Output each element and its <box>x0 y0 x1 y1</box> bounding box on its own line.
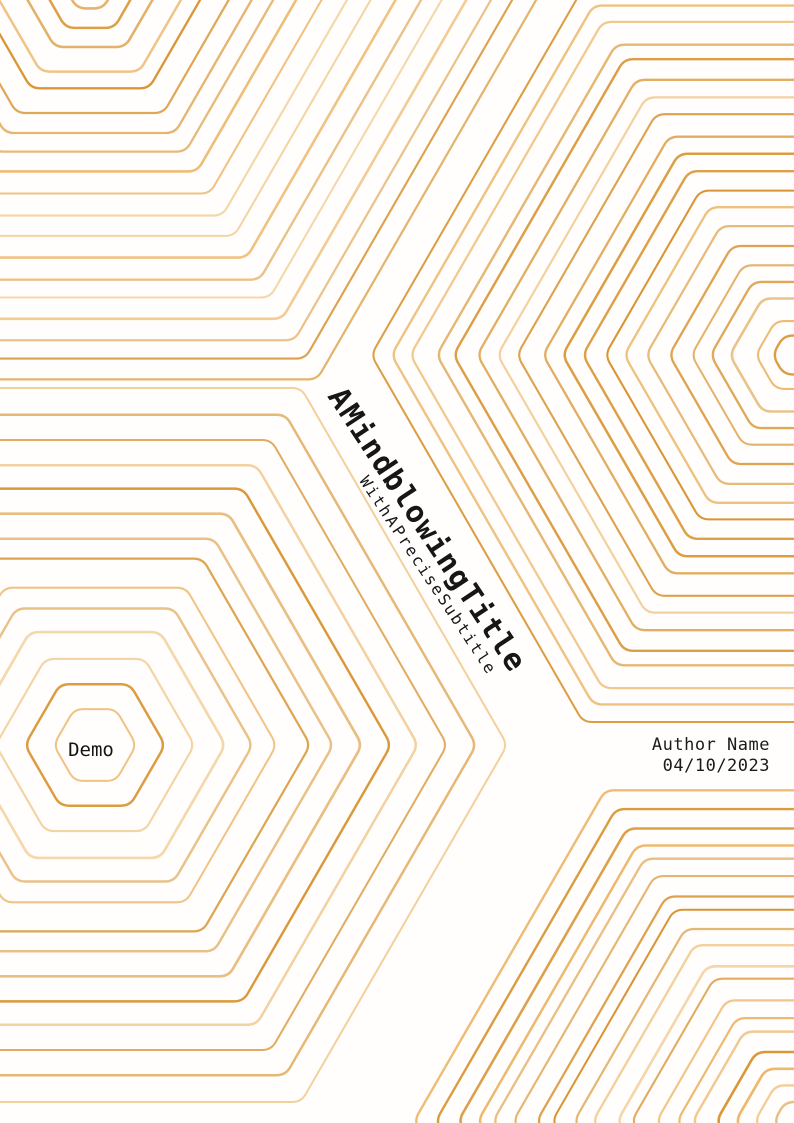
hexagon-ring <box>0 0 234 113</box>
hexagon-ring <box>627 207 794 503</box>
hexagon-ring <box>776 1102 794 1123</box>
hexagon-ring <box>495 859 794 1123</box>
hexagon-center-badge: Demo <box>41 738 141 762</box>
hexagon-ring <box>738 1069 794 1123</box>
hexagon-ring <box>694 265 794 444</box>
hexagon-ring <box>519 114 794 596</box>
hexagon-ring <box>0 0 302 171</box>
hexagon-ring <box>66 0 113 8</box>
author-name: Author Name <box>652 735 770 756</box>
hexagon-ring <box>732 299 794 412</box>
hexagon-ring <box>0 0 427 280</box>
hexagon-ring <box>480 80 794 630</box>
hexagon-pattern-background <box>0 0 794 1123</box>
hexagon-ring <box>480 846 794 1123</box>
hexagon-ring <box>695 1032 794 1123</box>
hexagon-ring <box>0 0 187 72</box>
hexagon-ring <box>713 282 794 428</box>
hexagon-ring <box>0 0 353 216</box>
hexagon-ring <box>0 0 206 88</box>
hexagon-ring <box>775 336 794 375</box>
hexagon-ring <box>22 0 159 47</box>
hexagon-ring <box>456 59 794 651</box>
cover-date: 04/10/2023 <box>652 756 770 777</box>
hexagon-ring <box>0 0 542 379</box>
cover-page: A Mindblowing Title With A Precise Subti… <box>0 0 794 1123</box>
hexagon-ring <box>607 191 794 520</box>
hexagon-ring <box>44 0 136 28</box>
author-block: Author Name 04/10/2023 <box>652 735 770 777</box>
hexagon-ring <box>373 0 794 722</box>
hexagon-ring <box>461 829 794 1123</box>
hexagon-ring <box>0 0 376 236</box>
hexagon-ring <box>416 790 794 1123</box>
hexagon-ring <box>679 1018 794 1123</box>
